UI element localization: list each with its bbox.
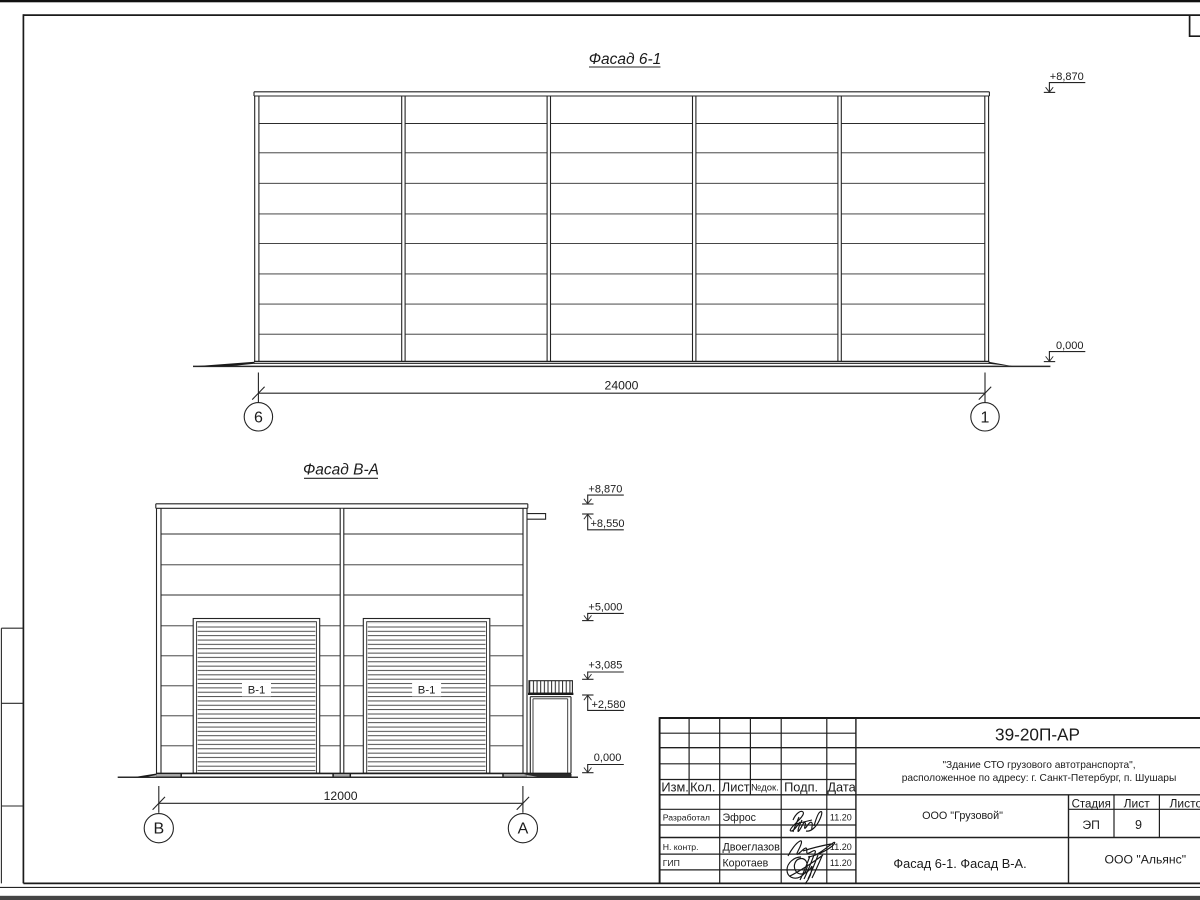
svg-text:Изм.: Изм. [661,780,688,795]
svg-text:Лист: Лист [1124,797,1151,811]
svg-text:Фасад 6-1. Фасад В-А.: Фасад 6-1. Фасад В-А. [893,856,1026,871]
svg-text:Разработал: Разработал [663,813,710,823]
svg-text:Коротаев: Коротаев [723,857,769,869]
svg-text:В-1: В-1 [248,685,266,697]
svg-text:ООО "Альянс": ООО "Альянс" [1105,853,1187,867]
svg-text:11.20: 11.20 [830,813,852,823]
svg-text:Кол.: Кол. [690,780,715,795]
svg-text:0,000: 0,000 [594,752,622,764]
svg-text:"Здание СТО грузового автотран: "Здание СТО грузового автотранспорта", [942,760,1135,771]
svg-text:Листов: Листов [1170,797,1200,811]
svg-text:ЭП: ЭП [1082,818,1100,832]
svg-text:11.20: 11.20 [830,858,852,868]
svg-text:Эфрос: Эфрос [723,812,757,824]
svg-text:+8,870: +8,870 [1050,71,1084,83]
svg-text:А: А [518,821,529,838]
svg-text:расположенное по адресу: г. Са: расположенное по адресу: г. Санкт-Петерб… [902,772,1177,784]
svg-text:+8,870: +8,870 [588,484,622,496]
svg-text:11.20: 11.20 [830,842,852,852]
svg-text:В-1: В-1 [418,685,436,697]
svg-text:Дата: Дата [827,780,856,795]
svg-text:Фасад В-А: Фасад В-А [303,461,379,478]
svg-text:Фасад 6-1: Фасад 6-1 [589,51,662,68]
svg-text:Н. контр.: Н. контр. [663,842,699,852]
svg-text:+8,550: +8,550 [591,518,625,530]
svg-text:Двоеглазов: Двоеглазов [723,841,781,853]
svg-text:9: 9 [1135,818,1142,832]
svg-text:ООО "Грузовой": ООО "Грузовой" [922,810,1003,822]
svg-text:1: 1 [981,409,990,426]
svg-text:24000: 24000 [605,379,639,393]
svg-text:39-20П-АР: 39-20П-АР [995,725,1080,745]
svg-text:+3,085: +3,085 [588,660,622,672]
svg-text:Стадия: Стадия [1072,799,1111,811]
svg-text:№док.: №док. [751,783,779,794]
svg-text:Лист: Лист [722,780,750,795]
svg-text:12000: 12000 [324,789,358,803]
svg-text:0,000: 0,000 [1056,340,1084,352]
svg-text:+2,580: +2,580 [592,699,626,711]
svg-text:Подп.: Подп. [784,780,818,795]
svg-text:6: 6 [254,409,263,426]
svg-text:+5,000: +5,000 [588,601,622,613]
svg-text:ГИП: ГИП [663,858,680,868]
svg-text:В: В [153,821,164,838]
